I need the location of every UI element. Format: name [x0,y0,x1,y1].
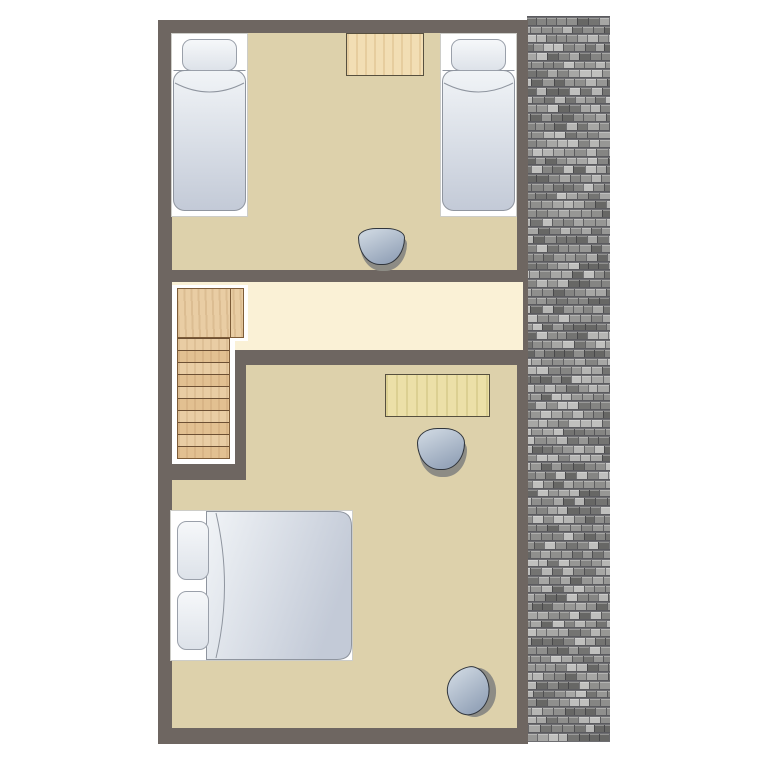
shingle [555,542,566,549]
shingle-row [527,680,610,689]
shingle [600,699,610,706]
shingle [571,394,582,401]
shingle [575,691,585,698]
shingle [546,35,556,42]
shingle [561,656,572,663]
shingle [540,376,552,383]
shingle-row [527,269,610,278]
shingle-row [527,234,610,243]
hallway-window [517,282,523,350]
shingle [574,498,584,505]
shingle [578,717,589,724]
shingle [585,725,595,732]
shingle [542,166,552,173]
shingle [591,560,602,567]
shingle [541,463,551,470]
shingle [527,367,537,374]
shingle-row [527,217,610,226]
mattress [207,512,352,660]
shingle [541,27,553,34]
shingle [606,324,610,331]
shingle [541,568,552,575]
shingle [592,525,603,532]
shingle [553,429,563,436]
shingle [579,507,591,514]
shingle [568,629,580,636]
pillow [178,522,209,580]
shingle-row [527,654,610,663]
shingle [590,612,601,619]
shingle [552,568,563,575]
shingle [569,88,580,95]
shingle [578,437,589,444]
shingle [596,691,607,698]
shingle [541,498,553,505]
shingle [527,682,536,689]
shingle [603,376,610,383]
shingle [563,498,575,505]
shingle [588,542,599,549]
shingle [553,516,563,523]
shingle [573,324,585,331]
shingle [527,140,536,147]
stair-tread [178,434,229,446]
shingle [574,516,585,523]
shingle [577,123,588,130]
shingle [565,254,576,261]
building-exterior-walls [158,20,528,744]
shingle [591,376,603,383]
shingle [543,481,553,488]
shingle [591,315,602,322]
stair-tread [178,338,229,350]
shingle [562,114,573,121]
stair-tread [178,362,229,374]
shingle [576,132,588,139]
shingle [601,175,610,182]
shingle [546,402,557,409]
shingle [582,394,593,401]
shingle [587,123,599,130]
shingle [566,18,578,25]
shingle [533,691,543,698]
shingle [535,472,545,479]
shingle [595,463,605,470]
shingle [564,603,576,610]
shingle [587,236,598,243]
shingle-row [527,645,610,654]
shingle-row [527,261,610,270]
shingle [586,691,596,698]
shingle [527,507,537,514]
shingle [556,158,566,165]
shingle [594,481,605,488]
shingle [585,289,595,296]
shingle [584,62,595,69]
shingle [590,507,600,514]
shingle [566,123,577,130]
shingle-row [527,95,610,104]
shingle-row [527,121,610,130]
shingle [558,734,568,741]
shingle [583,271,595,278]
shingle [544,236,556,243]
shingle [573,219,584,226]
shingle-row [527,444,610,453]
shingle [596,324,606,331]
shingle [572,27,582,34]
shingle [548,612,559,619]
shingle [585,621,596,628]
shingle [608,158,610,165]
shingle [591,88,602,95]
shingle-row [527,558,610,567]
shingle [542,149,553,156]
shingle [543,673,554,680]
shingle [557,717,568,724]
shingle-row [527,427,610,436]
shingle [608,263,610,270]
shingle [590,629,600,636]
shingle [607,254,610,261]
shingle [594,725,604,732]
shingle [559,699,569,706]
shingle [593,394,603,401]
shingle-row [527,435,610,444]
shingle [606,289,610,296]
shingle [594,350,604,357]
shingle [561,463,573,470]
shingle [588,437,599,444]
shingle [563,184,573,191]
shingle [557,280,568,287]
shingle [547,70,558,77]
shingle [527,105,536,112]
shingle [564,149,574,156]
shingle [556,193,566,200]
shingle [594,586,605,593]
shingle [546,140,557,147]
shingle [531,289,543,296]
shingle [609,123,610,130]
stool-top-room [358,228,405,265]
shingle [586,603,596,610]
shingle [585,97,595,104]
shingle [558,525,570,532]
shingle [574,149,586,156]
shingle [582,551,592,558]
shingle [566,193,576,200]
pillow [452,40,506,71]
shingle-row [527,313,610,322]
shingle [558,53,569,60]
shingle [580,88,592,95]
shingle [607,498,610,505]
shingle [557,140,567,147]
shingle [553,254,565,261]
shingle [557,332,567,339]
shingle-row [527,418,610,427]
shingle [586,149,597,156]
shingle-row [527,540,610,549]
shingle [547,455,559,462]
shingle [542,708,554,715]
pillow [178,592,209,650]
shingle [608,236,610,243]
shingle [542,289,552,296]
shingle [551,463,562,470]
shingle [569,612,579,619]
shingle [553,184,563,191]
shingle [591,175,601,182]
shingle [565,132,576,139]
shingle [585,324,597,331]
shingle [599,490,610,497]
shingle [593,411,603,418]
shingle [579,734,590,741]
shingle [590,455,602,462]
shingle [530,656,540,663]
shingle [608,664,610,671]
shingle [591,420,602,427]
shingle [536,525,547,532]
shingle [587,35,597,42]
shingle [572,271,582,278]
shingle [558,455,569,462]
shingle-row [527,322,610,331]
shingle-row [527,86,610,95]
shingle [569,490,579,497]
shingle [556,594,566,601]
shingle [587,158,598,165]
shingle [537,612,548,619]
shingle [568,682,579,689]
shingle [573,533,585,540]
shingle [599,140,610,147]
shingle [527,612,537,619]
shingle [536,263,547,270]
desk-top-room [346,33,424,76]
shingle [594,516,604,523]
shingle [609,18,610,25]
shingle [552,27,562,34]
shingle [554,132,565,139]
shingle [527,210,537,217]
shingle [579,490,590,497]
shingle [589,734,599,741]
shingle [596,621,607,628]
shingle [547,682,558,689]
shingle [534,385,544,392]
shingle [583,219,595,226]
shingle [576,236,587,243]
shingle [535,664,545,671]
shingle [606,621,610,628]
shingle [551,114,562,121]
shingle [531,62,543,69]
shingle [537,315,548,322]
shingle [568,245,579,252]
shingle [587,332,598,339]
shingle-row [527,77,610,86]
shingle [581,228,592,235]
shingle [598,542,609,549]
shingle [595,219,607,226]
shingle-row [527,584,610,593]
shingle [589,140,599,147]
shingle [537,490,548,497]
shingle [591,210,603,217]
shingle [559,612,570,619]
shingle [570,175,580,182]
shingle [593,184,604,191]
shingle [578,298,589,305]
shingle [605,533,610,540]
shingle [595,62,606,69]
shingle [603,306,610,313]
shingle-row [527,392,610,401]
shingle [552,324,563,331]
shingle-row [527,182,610,191]
shingle [556,298,567,305]
stair-tread [178,410,229,422]
shingle [569,53,579,60]
shingle-row [527,523,610,532]
shingle [573,481,584,488]
shingle [600,507,610,514]
shingle [547,420,558,427]
shingle [580,420,592,427]
shingle [586,254,597,261]
shingle [527,18,536,25]
shingle-row [527,636,610,645]
shingle [580,560,592,567]
shingle [528,725,540,732]
shingle [579,612,590,619]
shingle [546,193,556,200]
shingle [606,114,610,121]
shingle [608,332,610,339]
shingle [536,175,548,182]
shingle [544,97,555,104]
shingle [600,717,610,724]
shingle [538,577,549,584]
shingle [596,79,607,86]
shingle [567,437,578,444]
pillow [183,40,237,71]
shingle [606,201,610,208]
shingle [589,280,600,287]
shingle [562,411,572,418]
shingle [532,149,542,156]
shingle [581,525,593,532]
shingle [547,245,558,252]
shingle-row [527,671,610,680]
shingle [530,306,542,313]
shingle [536,682,548,689]
shingle-row [527,470,610,479]
shingle [536,332,547,339]
shingle [584,533,595,540]
shingle [542,341,552,348]
shingle [574,79,585,86]
shingle [558,210,569,217]
shingle [567,734,578,741]
shingle [597,359,607,366]
shingle-row [527,592,610,601]
shingle [558,420,569,427]
shingle [536,245,548,252]
shingle [584,350,595,357]
shingle [580,105,590,112]
shingle [584,446,594,453]
shingle [546,437,557,444]
shingle [608,594,610,601]
shingle [604,44,610,51]
shingle [562,568,573,575]
shingle [527,53,536,60]
shingle [566,594,577,601]
shingle [527,88,536,95]
shingle [542,219,553,226]
shingle [542,429,553,436]
shingle [541,394,551,401]
shingle [560,367,571,374]
shingle [563,481,573,488]
shingle [568,420,580,427]
shingle [563,201,573,208]
shingle [601,280,610,287]
shingle [558,490,569,497]
shingle-row [527,243,610,252]
shingle [562,446,573,453]
shingle [607,691,610,698]
shingle [587,472,598,479]
shingle-row [527,173,610,182]
shingle-row [527,575,610,584]
shingle [591,367,602,374]
shingle [595,289,607,296]
shingle [532,341,542,348]
shingle [600,629,610,636]
shingle [608,35,610,42]
shingle [582,27,593,34]
shingle [534,437,546,444]
shingle [579,70,591,77]
shingle [595,114,607,121]
shingle-row [527,42,610,51]
shingle [575,254,586,261]
shingle-row [527,715,610,724]
shingle [547,53,558,60]
shingle [546,298,556,305]
shingle [576,673,587,680]
shingle [530,621,541,628]
shingle [543,516,554,523]
shingle [552,603,563,610]
shingle [583,481,595,488]
shingle [574,44,585,51]
shingle [543,44,553,51]
shingle [572,411,583,418]
shingle [527,70,536,77]
shingle [542,446,552,453]
shingle [543,254,553,261]
shingle [578,140,589,147]
shingle [574,638,586,645]
shingle [573,166,585,173]
shingle [527,298,536,305]
